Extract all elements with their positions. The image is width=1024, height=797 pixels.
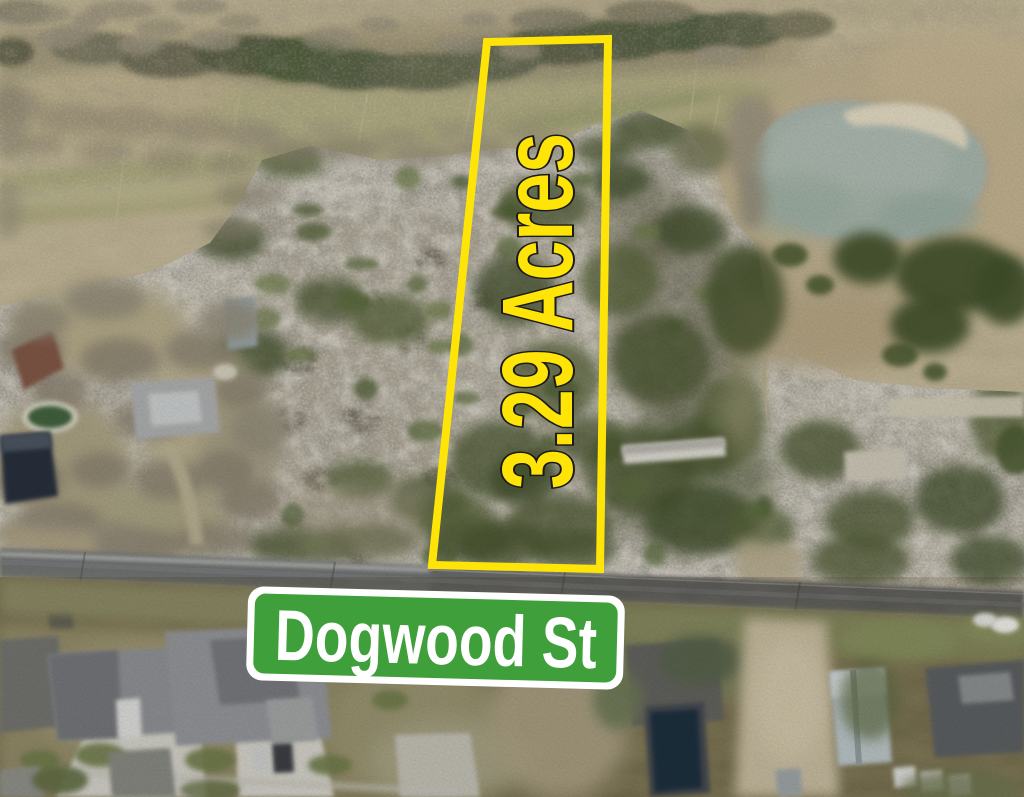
- svg-text:Dogwood St: Dogwood St: [274, 596, 598, 684]
- svg-text:3.29 Acres: 3.29 Acres: [482, 133, 594, 489]
